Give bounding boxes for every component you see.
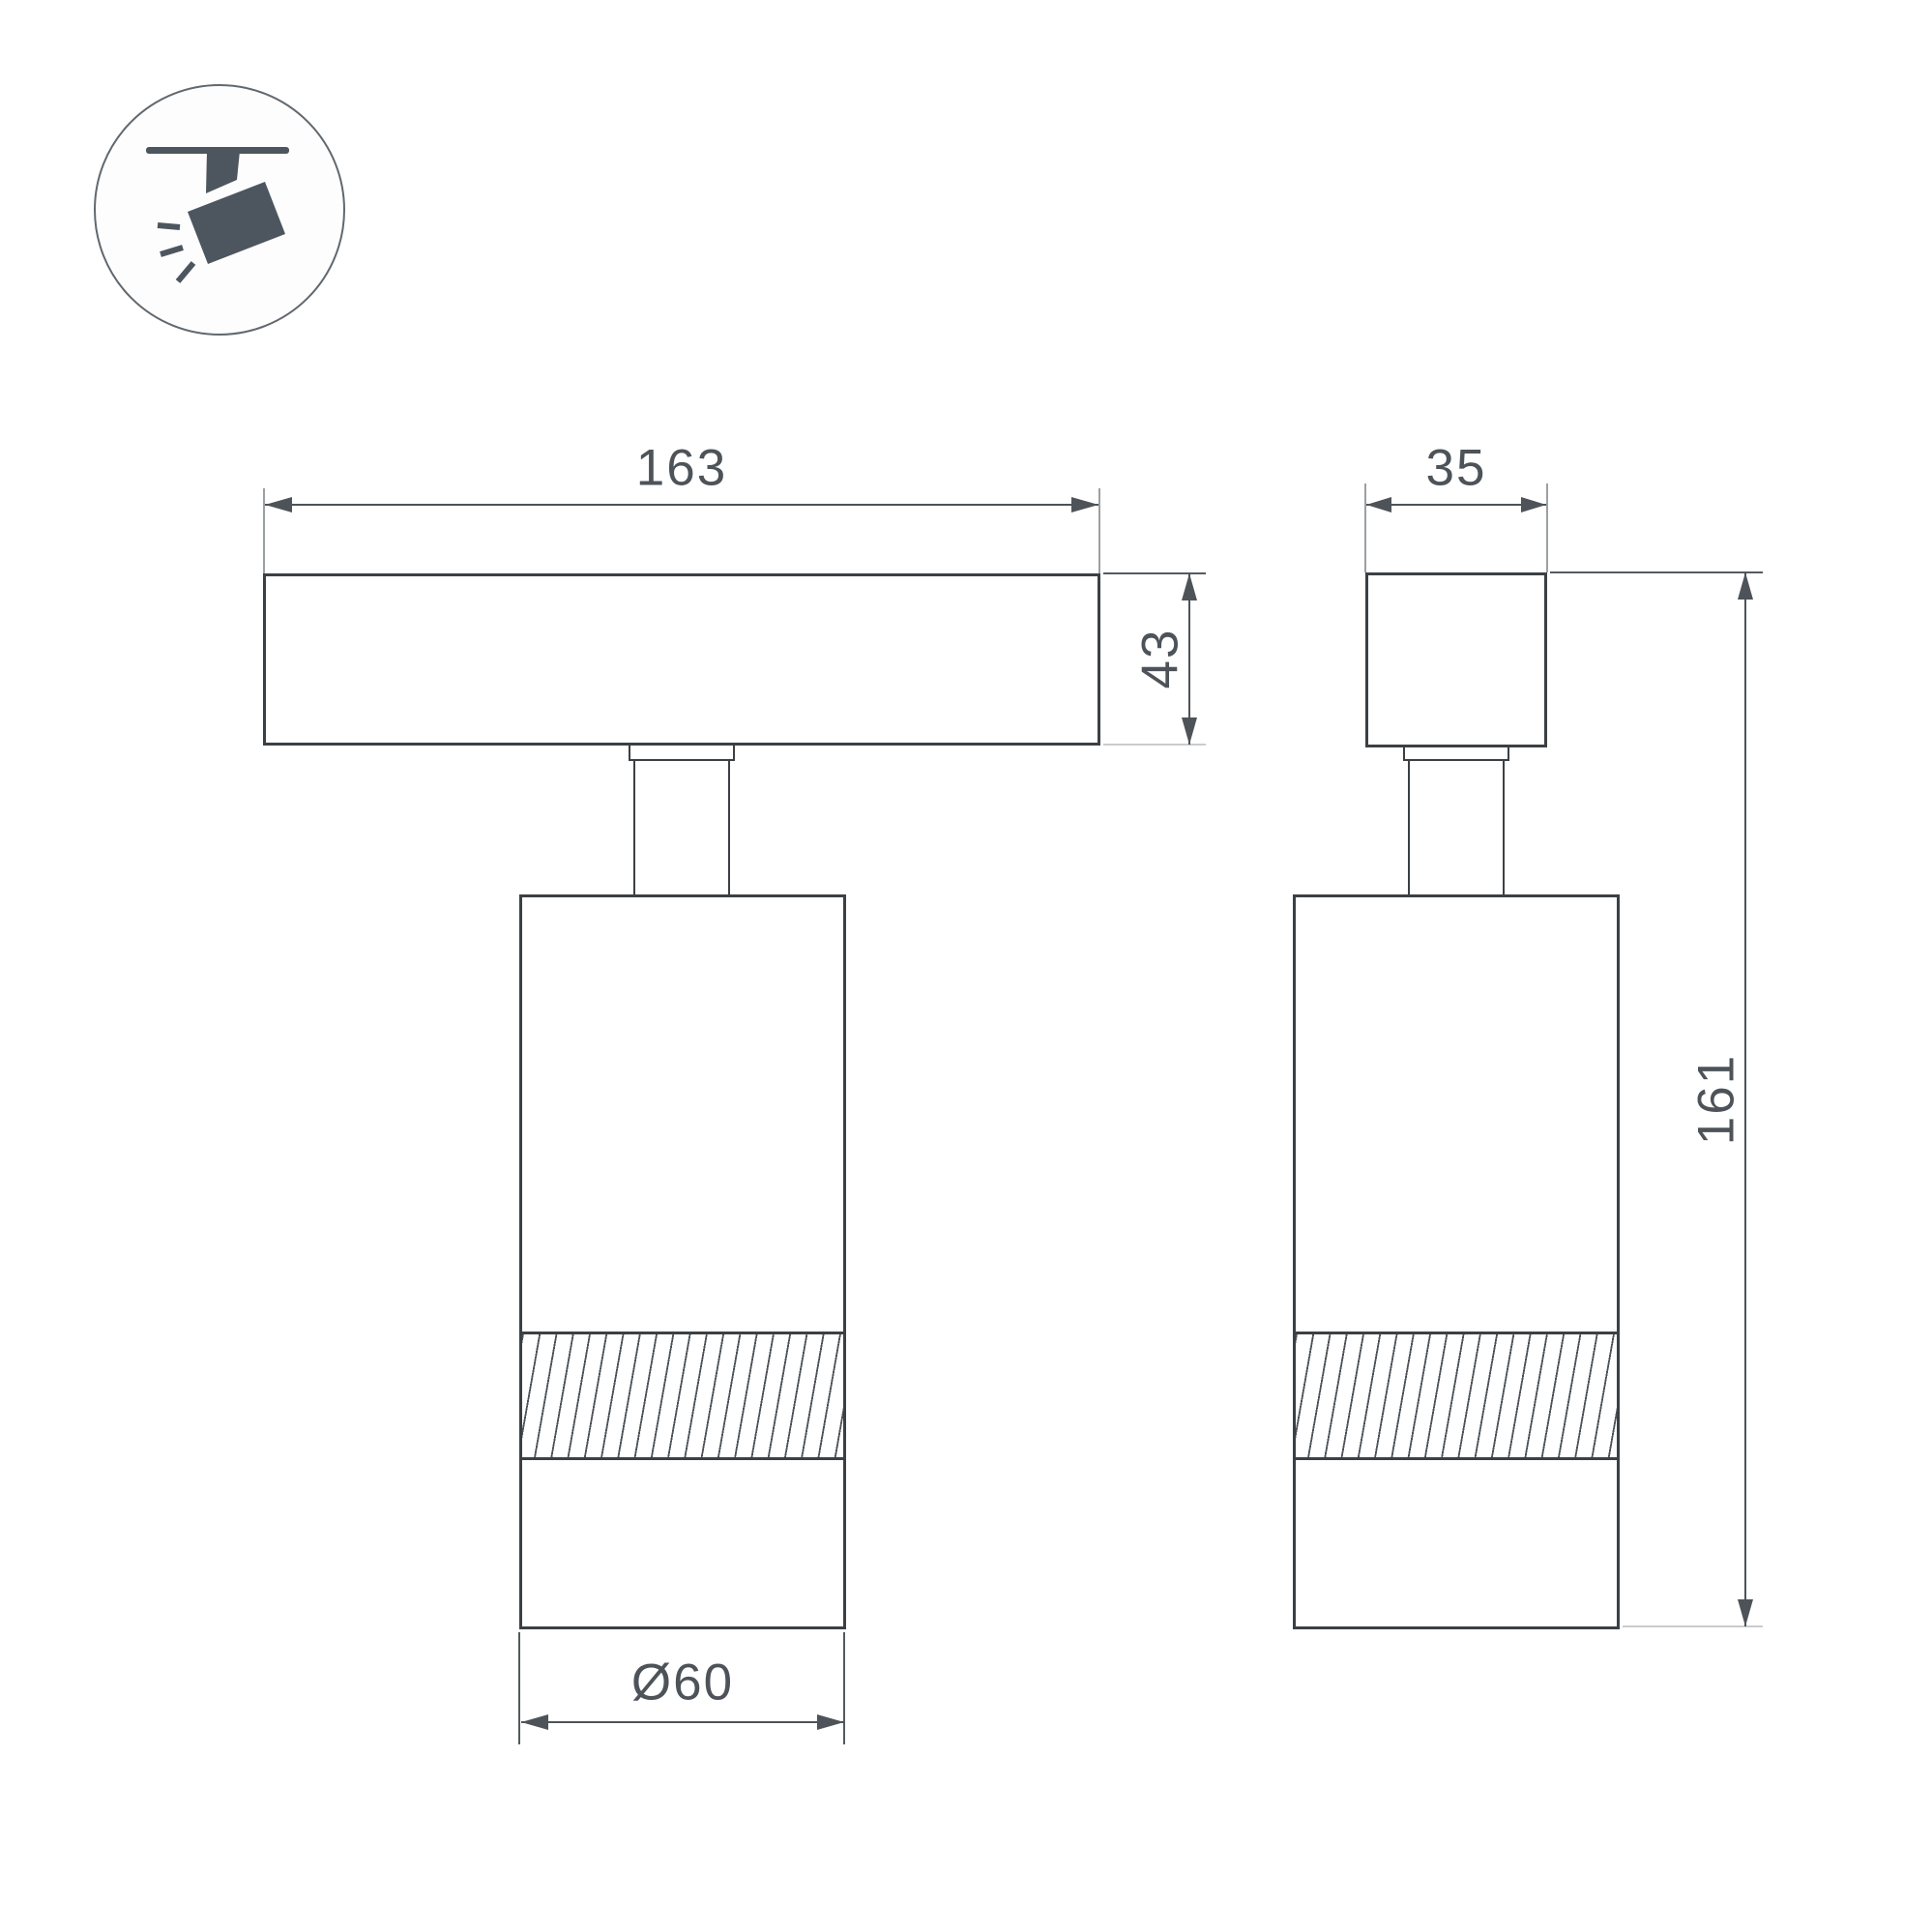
- dimension-label-track-depth: 35: [1426, 443, 1487, 494]
- front-view-collar: [629, 746, 735, 761]
- arrowhead-down-icon: [1182, 717, 1197, 745]
- extension-line: [1550, 571, 1763, 573]
- arrowhead-down-icon: [1738, 1599, 1753, 1626]
- dimension-label-total-height: 161: [1691, 1054, 1742, 1145]
- side-view-cylinder-body: [1293, 894, 1620, 1629]
- arrowhead-left-icon: [1366, 497, 1391, 512]
- extension-line: [1546, 483, 1548, 572]
- drawing-sheet: 163 43 Ø60: [0, 0, 1932, 1932]
- extension-line: [1098, 488, 1100, 573]
- extension-line: [518, 1632, 520, 1744]
- front-view-track-box: [263, 573, 1100, 746]
- side-view-track-box: [1365, 572, 1547, 747]
- front-view-stem: [633, 760, 730, 895]
- arrowhead-right-icon: [817, 1714, 844, 1730]
- side-view-knurl-band: [1293, 1332, 1620, 1460]
- dimension-line: [1366, 504, 1546, 506]
- arrowhead-up-icon: [1182, 573, 1197, 600]
- arrowhead-left-icon: [265, 497, 292, 512]
- front-view-cylinder-body: [519, 894, 846, 1629]
- arrowhead-right-icon: [1071, 497, 1098, 512]
- dimension-line: [265, 504, 1098, 506]
- track-spotlight-icon: [92, 82, 347, 337]
- side-view-collar: [1403, 747, 1509, 761]
- arrowhead-up-icon: [1738, 572, 1753, 600]
- dimension-label-body-diameter: Ø60: [631, 1657, 734, 1709]
- dimension-line: [521, 1721, 844, 1723]
- front-view-knurl-band: [519, 1332, 846, 1460]
- side-view-stem: [1408, 761, 1505, 895]
- track-spotlight-icon-svg: [92, 82, 347, 337]
- arrowhead-right-icon: [1521, 497, 1546, 512]
- dimension-label-track-height: 43: [1135, 629, 1186, 689]
- dimension-label-track-length: 163: [636, 443, 727, 494]
- arrowhead-left-icon: [521, 1714, 548, 1730]
